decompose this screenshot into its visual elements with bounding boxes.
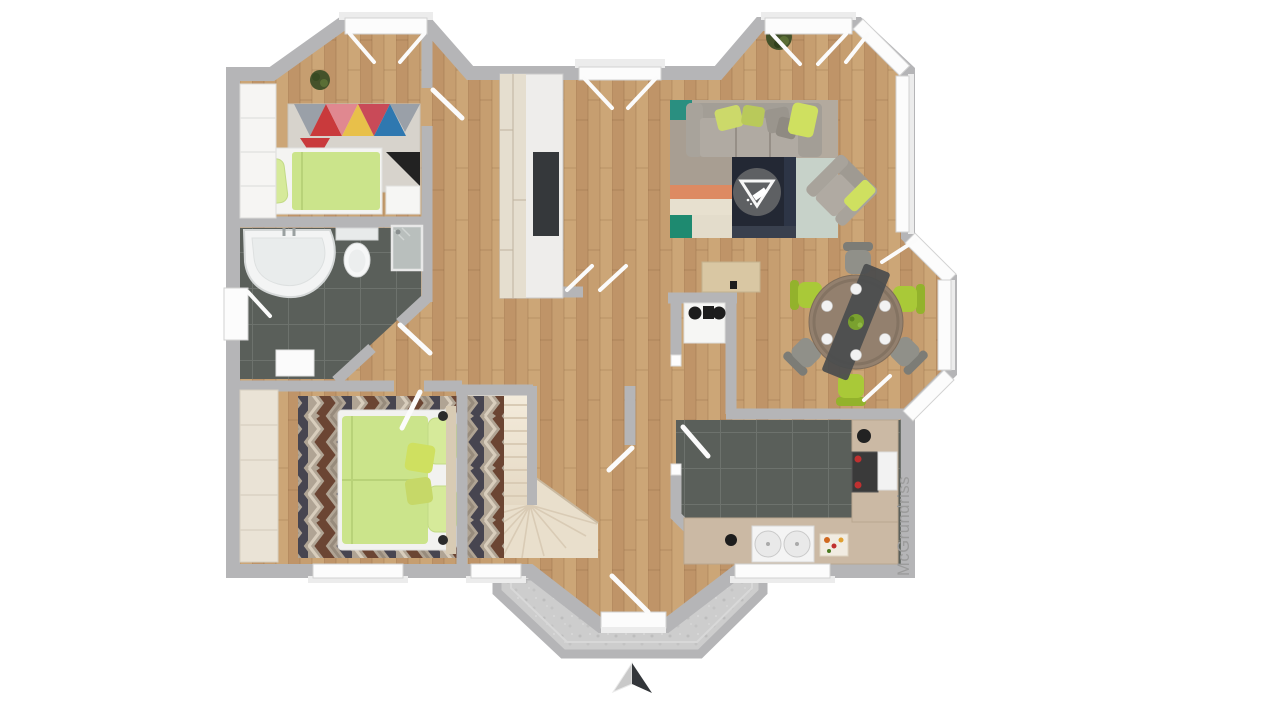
table-centerpiece bbox=[848, 314, 864, 330]
floor-plan-canvas: McGrundriss bbox=[0, 0, 1280, 720]
double-bed bbox=[338, 406, 456, 554]
hob-burner-icon bbox=[713, 307, 726, 320]
wardrobe-white bbox=[240, 84, 276, 218]
window bbox=[765, 18, 852, 34]
bedside-lamp-icon bbox=[438, 411, 448, 421]
bedside-lamp-icon bbox=[438, 535, 448, 545]
window bbox=[471, 564, 521, 578]
wardrobe-wood bbox=[240, 390, 278, 562]
double-sink bbox=[752, 526, 814, 562]
kitchen-faucet-icon bbox=[857, 429, 871, 443]
hob-burner-icon bbox=[689, 307, 702, 320]
window bbox=[938, 280, 951, 370]
stove bbox=[852, 452, 878, 492]
bath-mat bbox=[276, 350, 314, 376]
watermark-label: McGrundriss bbox=[895, 476, 913, 576]
window bbox=[735, 564, 830, 578]
mcgrundriss-logo-icon bbox=[733, 168, 781, 216]
bedroom-master bbox=[298, 396, 504, 558]
window bbox=[579, 67, 661, 80]
window bbox=[224, 288, 248, 340]
tv-icon bbox=[533, 152, 559, 236]
dining-chair-green bbox=[836, 374, 866, 406]
window bbox=[345, 18, 427, 34]
tv-partition-wall bbox=[500, 74, 563, 298]
sofa-pillow bbox=[741, 104, 766, 127]
hob-control-icon bbox=[703, 306, 714, 319]
window bbox=[313, 564, 403, 578]
window bbox=[896, 76, 909, 232]
desk bbox=[386, 186, 420, 214]
sofa bbox=[686, 102, 822, 157]
sink-faucet-icon bbox=[725, 534, 737, 546]
front-door bbox=[601, 612, 666, 628]
door-post bbox=[671, 355, 681, 366]
cutting-board bbox=[820, 534, 848, 556]
floor-plan-screenshot: McGrundriss bbox=[0, 0, 1280, 720]
headboard bbox=[446, 406, 456, 554]
north-arrow-icon bbox=[613, 663, 652, 693]
shower-faucet-icon bbox=[396, 230, 401, 235]
shower bbox=[392, 226, 422, 270]
plant-icon bbox=[310, 70, 330, 90]
door-post bbox=[671, 464, 681, 475]
